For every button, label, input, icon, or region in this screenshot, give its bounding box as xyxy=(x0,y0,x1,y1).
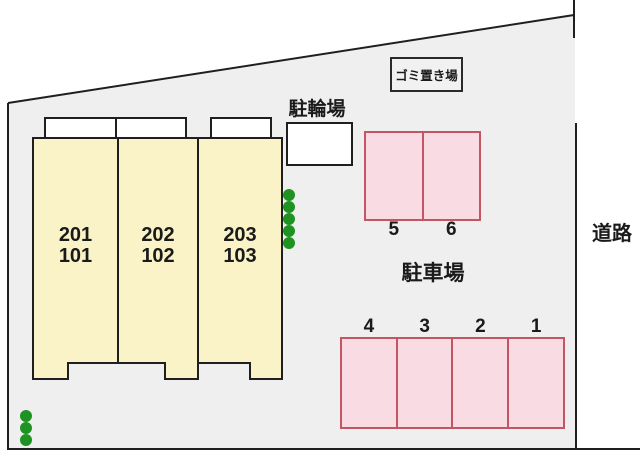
unit-lower-number: 101 xyxy=(33,246,118,267)
parking-stall-number: 2 xyxy=(453,316,509,338)
road-label: 道路 xyxy=(586,217,638,246)
unit-label: 202 102 xyxy=(118,225,198,267)
site-plan-canvas: ゴミ置き場 駐輪場 駐車場 道路 201 101 202 102 203 103… xyxy=(0,0,640,457)
parking-lot-label: 駐車場 xyxy=(388,257,478,287)
unit-label: 201 101 xyxy=(33,225,118,267)
parking-stall-number: 6 xyxy=(423,219,481,241)
unit-upper-number: 203 xyxy=(198,225,282,246)
tree-icon xyxy=(20,422,32,434)
tree-icon xyxy=(20,434,32,446)
parking-lower-stall-numbers: 4 3 2 1 xyxy=(341,316,564,338)
parking-upper-stall-numbers: 5 6 xyxy=(365,219,480,241)
unit-upper-number: 202 xyxy=(118,225,198,246)
tree-icon xyxy=(283,213,295,225)
garbage-area-box: ゴミ置き場 xyxy=(390,57,463,92)
bicycle-parking-area xyxy=(287,123,352,165)
parking-stall-number: 3 xyxy=(397,316,453,338)
garbage-area-label: ゴミ置き場 xyxy=(395,65,458,84)
tree-icon xyxy=(283,225,295,237)
tree-icon xyxy=(283,201,295,213)
balcony xyxy=(45,118,116,138)
tree-icon xyxy=(283,237,295,249)
parking-stall-number: 4 xyxy=(341,316,397,338)
parking-stall-number: 1 xyxy=(508,316,564,338)
tree-icon xyxy=(20,410,32,422)
tree-row-right xyxy=(283,189,295,249)
tree-icon xyxy=(283,189,295,201)
parking-stall-number: 5 xyxy=(365,219,423,241)
unit-label: 203 103 xyxy=(198,225,282,267)
unit-upper-number: 201 xyxy=(33,225,118,246)
tree-group-bottom-left xyxy=(20,410,32,446)
unit-lower-number: 102 xyxy=(118,246,198,267)
balcony xyxy=(116,118,186,138)
unit-lower-number: 103 xyxy=(198,246,282,267)
bicycle-parking-label: 駐輪場 xyxy=(281,94,353,121)
balcony xyxy=(211,118,271,138)
